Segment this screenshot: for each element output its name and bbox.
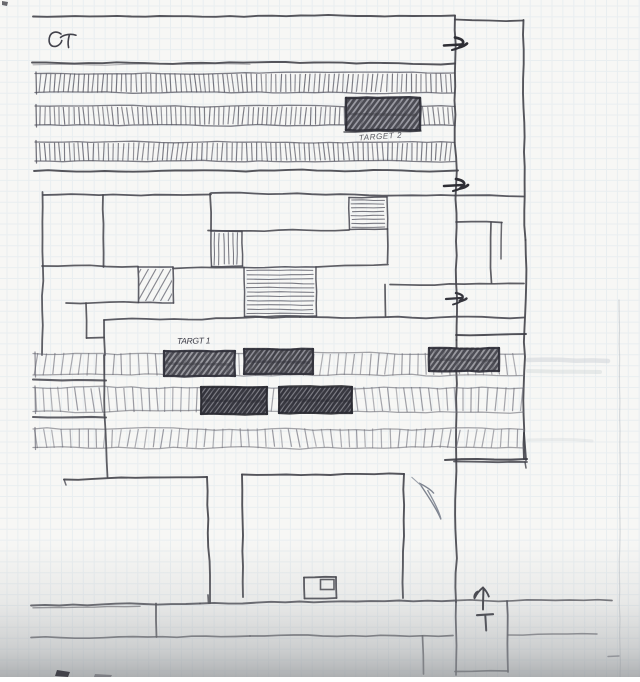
svg-text:TARGT 1: TARGT 1 [177,335,211,346]
